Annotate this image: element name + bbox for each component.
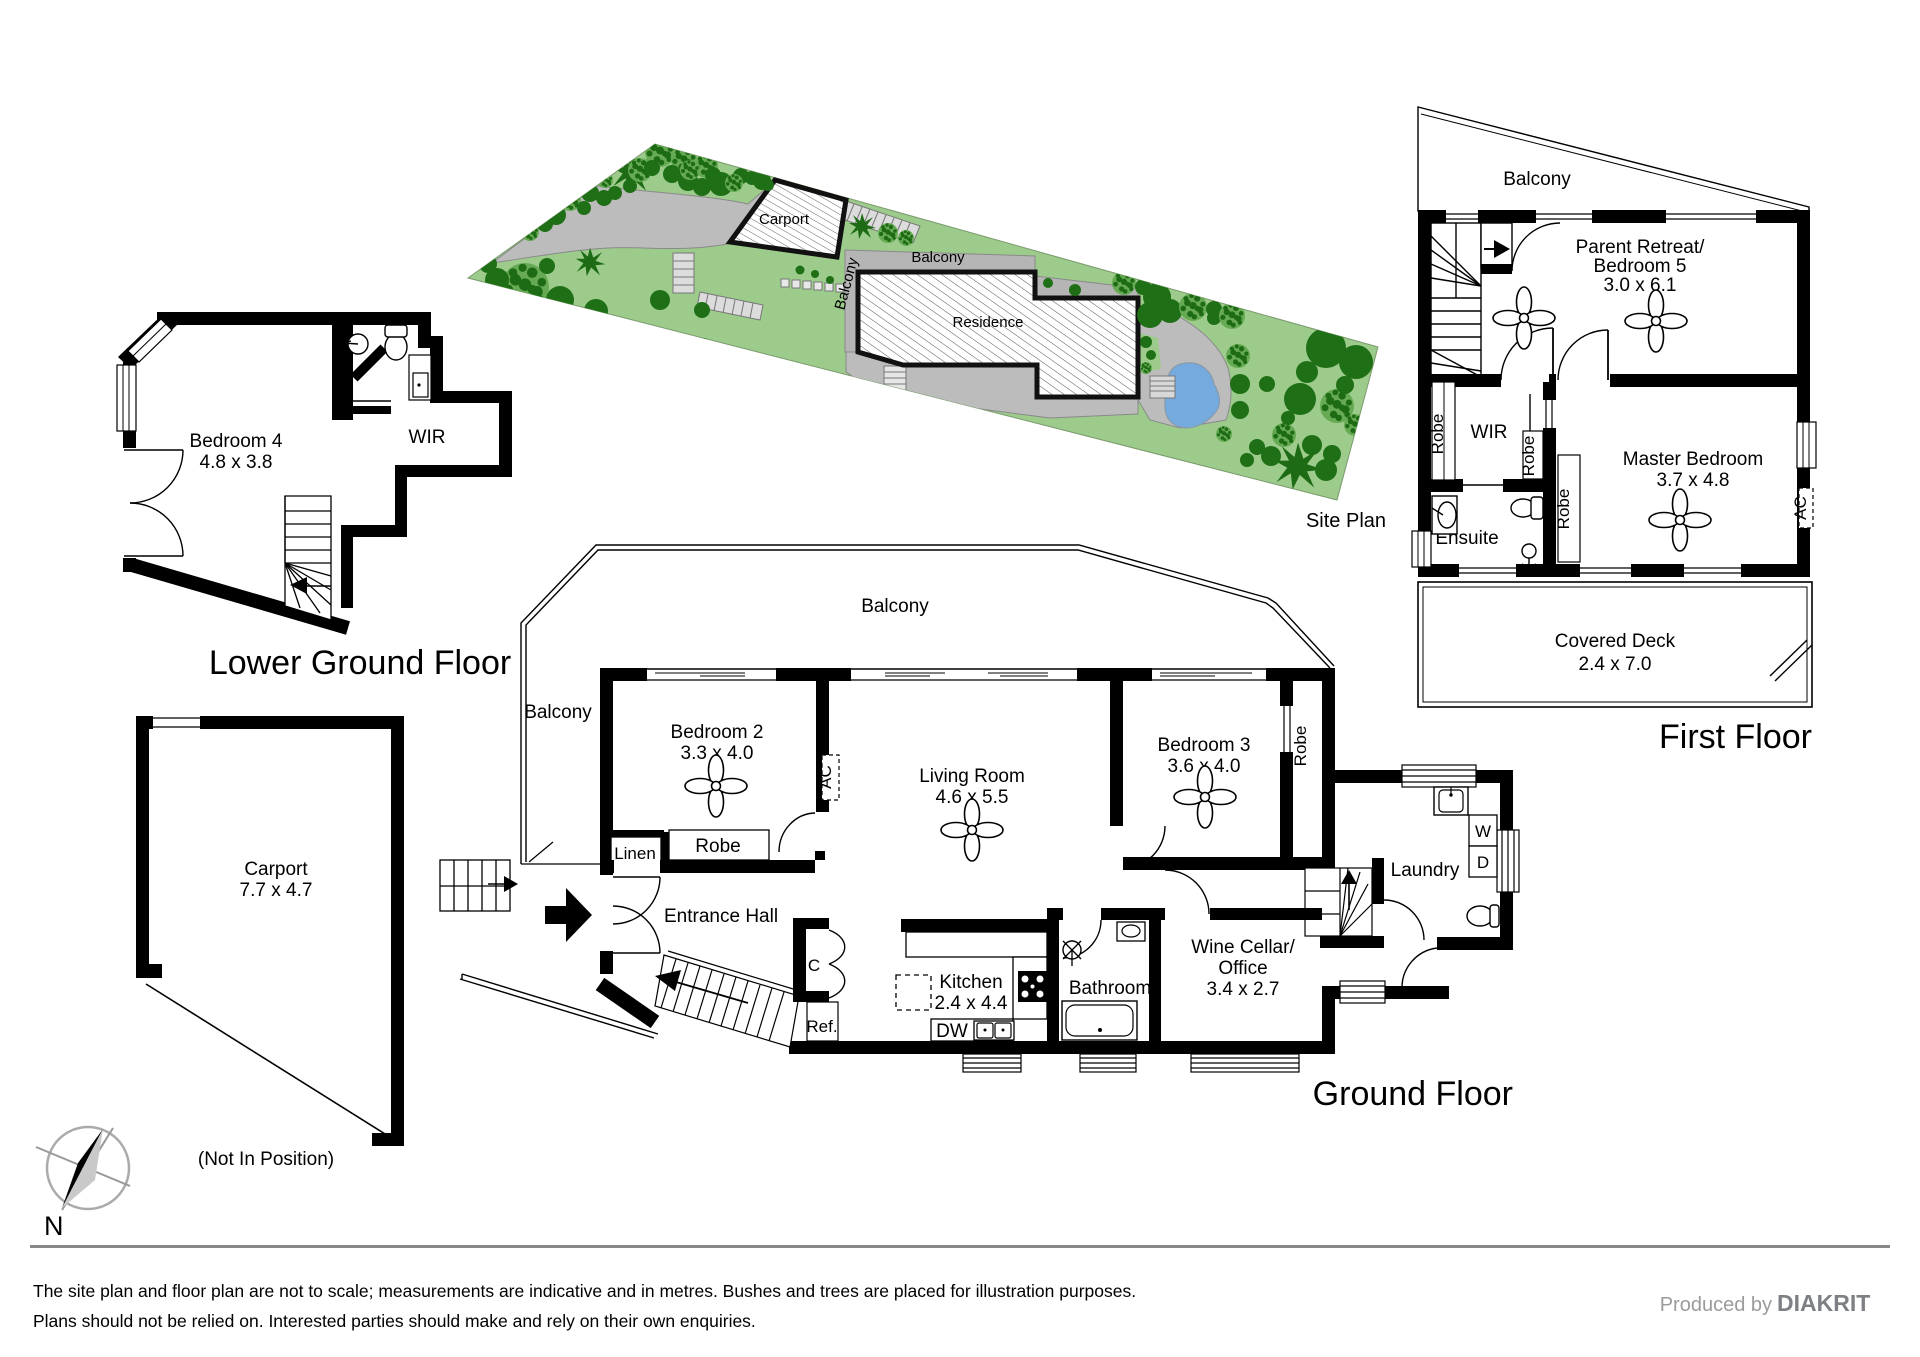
svg-text:Laundry: Laundry [1391, 860, 1460, 881]
svg-text:Balcony: Balcony [1503, 169, 1571, 190]
svg-text:Robe: Robe [695, 836, 740, 857]
svg-text:DIAKRIT: DIAKRIT [1777, 1290, 1870, 1316]
svg-text:First Floor: First Floor [1659, 718, 1812, 756]
svg-text:Robe: Robe [1554, 489, 1573, 530]
svg-text:C: C [808, 956, 820, 975]
svg-text:DW: DW [936, 1021, 968, 1042]
svg-text:Residence: Residence [953, 314, 1024, 331]
svg-text:Lower Ground Floor: Lower Ground Floor [209, 644, 511, 682]
svg-text:Master Bedroom: Master Bedroom [1623, 449, 1763, 470]
svg-text:Bedroom 2: Bedroom 2 [671, 722, 764, 743]
svg-text:Bathroom: Bathroom [1069, 978, 1151, 999]
svg-text:Wine Cellar/: Wine Cellar/ [1191, 937, 1295, 958]
svg-text:Balcony: Balcony [861, 596, 929, 617]
svg-text:Ground Floor: Ground Floor [1313, 1075, 1513, 1113]
svg-text:AC: AC [816, 765, 835, 789]
svg-text:2.4 x 7.0: 2.4 x 7.0 [1579, 654, 1652, 675]
svg-text:D: D [1477, 853, 1489, 872]
svg-text:3.7 x 4.8: 3.7 x 4.8 [1657, 470, 1730, 491]
svg-text:Linen: Linen [614, 844, 656, 863]
svg-text:Entrance Hall: Entrance Hall [664, 906, 778, 927]
svg-text:N: N [44, 1211, 64, 1241]
svg-text:Site Plan: Site Plan [1306, 510, 1386, 532]
svg-text:Kitchen: Kitchen [939, 972, 1002, 993]
svg-text:3.4 x 2.7: 3.4 x 2.7 [1207, 979, 1280, 1000]
svg-text:Ref.: Ref. [806, 1017, 837, 1036]
svg-text:7.7 x 4.7: 7.7 x 4.7 [240, 880, 313, 901]
svg-text:Plans should not be relied on.: Plans should not be relied on. Intereste… [33, 1311, 756, 1331]
svg-text:2.4 x 4.4: 2.4 x 4.4 [935, 993, 1008, 1014]
svg-text:Produced by: Produced by [1660, 1294, 1772, 1316]
svg-text:Balcony: Balcony [911, 249, 965, 266]
svg-text:AC: AC [1791, 496, 1810, 520]
svg-text:Office: Office [1218, 958, 1267, 979]
svg-text:4.8 x 3.8: 4.8 x 3.8 [200, 452, 273, 473]
svg-text:Robe: Robe [1519, 436, 1538, 477]
svg-text:Carport: Carport [244, 859, 308, 880]
svg-text:WIR: WIR [1471, 422, 1508, 443]
svg-text:Bedroom 5: Bedroom 5 [1594, 256, 1687, 277]
svg-text:Bedroom 3: Bedroom 3 [1158, 735, 1251, 756]
svg-text:Parent Retreat/: Parent Retreat/ [1576, 237, 1706, 258]
svg-text:The site plan and floor plan a: The site plan and floor plan are not to … [33, 1281, 1136, 1301]
svg-text:Balcony: Balcony [524, 702, 592, 723]
svg-text:WIR: WIR [409, 427, 446, 448]
svg-text:(Not In Position): (Not In Position) [198, 1149, 334, 1170]
svg-text:Living Room: Living Room [919, 766, 1025, 787]
svg-text:Bedroom 4: Bedroom 4 [190, 431, 283, 452]
svg-text:Robe: Robe [1291, 726, 1310, 767]
svg-text:Carport: Carport [759, 211, 810, 228]
svg-text:Robe: Robe [1428, 414, 1447, 455]
svg-text:W: W [1475, 822, 1491, 841]
svg-text:3.0 x 6.1: 3.0 x 6.1 [1604, 275, 1677, 296]
svg-text:Covered Deck: Covered Deck [1555, 631, 1676, 652]
